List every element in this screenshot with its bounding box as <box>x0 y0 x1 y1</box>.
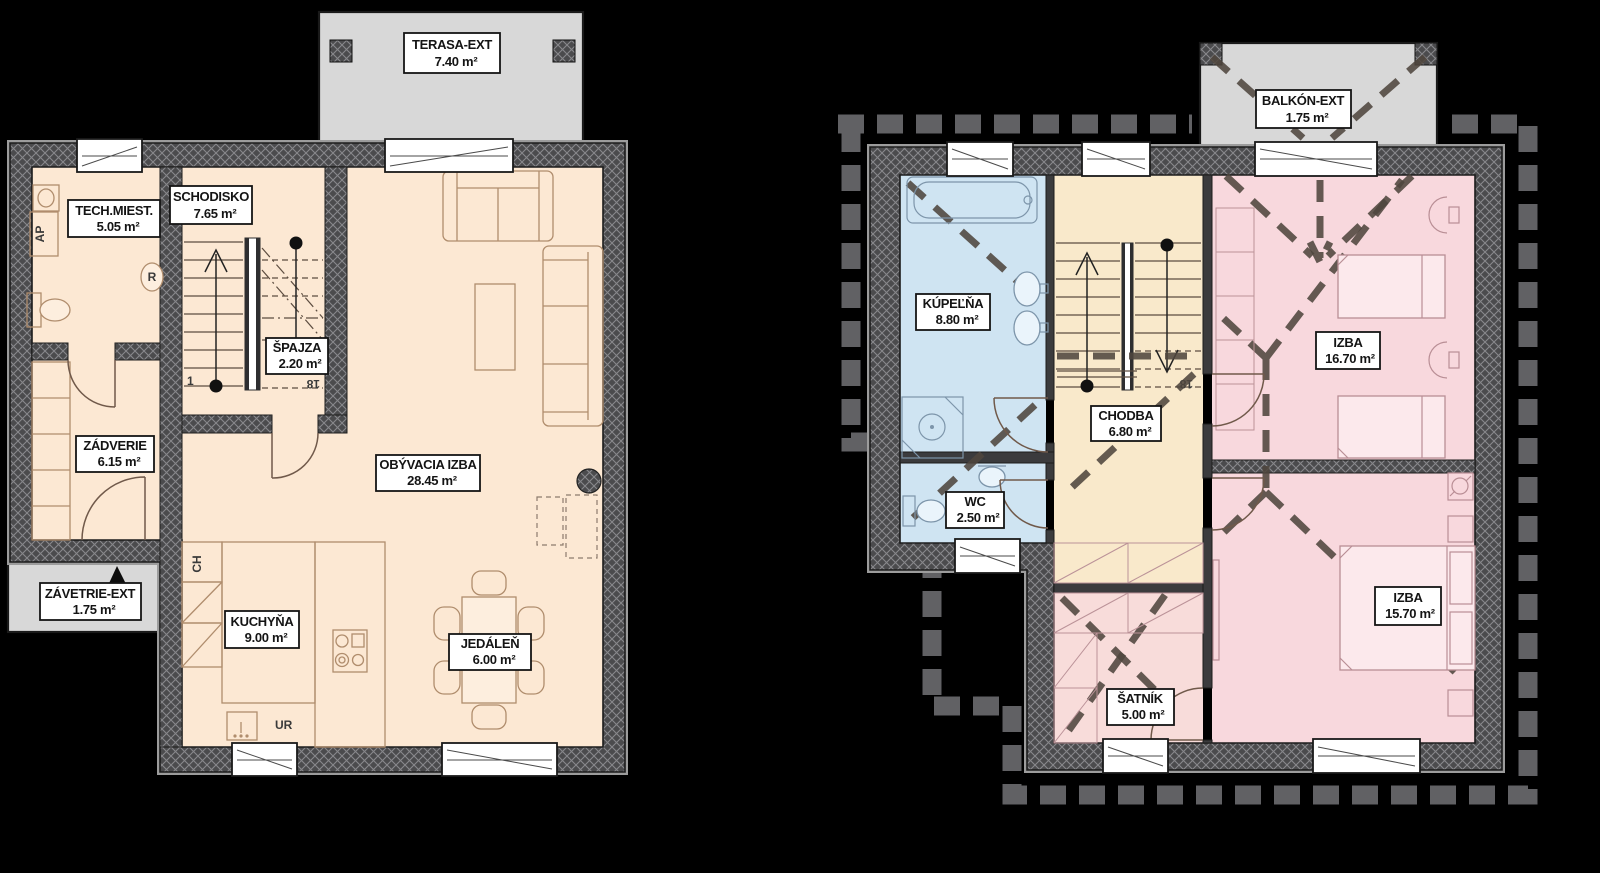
svg-text:ŠPAJZA: ŠPAJZA <box>273 340 322 355</box>
svg-text:JEDÁLEŇ: JEDÁLEŇ <box>461 636 520 651</box>
svg-text:16.70 m²: 16.70 m² <box>1325 351 1376 366</box>
room-label-bedroom1: IZBA 16.70 m² <box>1316 332 1380 369</box>
svg-text:7.65 m²: 7.65 m² <box>194 206 238 221</box>
svg-text:15.70 m²: 15.70 m² <box>1385 606 1436 621</box>
svg-text:BALKÓN-EXT: BALKÓN-EXT <box>1262 93 1345 108</box>
terrace-area <box>319 12 583 143</box>
window <box>442 743 557 776</box>
svg-text:IZBA: IZBA <box>1393 590 1423 605</box>
svg-text:ŠATNÍK: ŠATNÍK <box>1117 691 1164 706</box>
room-label-kitchen: KUCHYŇA 9.00 m² <box>225 611 299 648</box>
window <box>955 539 1020 573</box>
svg-text:R: R <box>148 270 157 284</box>
room-label-staircase: SCHODISKO 7.65 m² <box>170 186 252 224</box>
svg-text:5.05 m²: 5.05 m² <box>97 219 141 234</box>
svg-text:2.20 m²: 2.20 m² <box>279 356 323 371</box>
svg-text:ZÁVETRIE-EXT: ZÁVETRIE-EXT <box>45 586 136 601</box>
upper-floor-plan: 18 <box>838 43 1528 795</box>
svg-text:IZBA: IZBA <box>1333 335 1363 350</box>
svg-text:7.40 m²: 7.40 m² <box>435 54 479 69</box>
floorplan-canvas: 1 18 AP R CH <box>0 0 1600 873</box>
svg-text:SCHODISKO: SCHODISKO <box>173 189 249 204</box>
room-label-wc: WC 2.50 m² <box>946 492 1004 528</box>
room-label-living: OBÝVACIA IZBA 28.45 m² <box>376 455 480 491</box>
svg-text:28.45 m²: 28.45 m² <box>407 473 458 488</box>
svg-text:ZÁDVERIE: ZÁDVERIE <box>83 438 147 453</box>
stair-end-dot <box>290 237 303 250</box>
room-label-balcony: BALKÓN-EXT 1.75 m² <box>1256 90 1351 128</box>
room-label-pantry: ŠPAJZA 2.20 m² <box>266 338 328 374</box>
room-label-porch: ZÁVETRIE-EXT 1.75 m² <box>40 583 141 620</box>
svg-text:WC: WC <box>964 494 986 509</box>
window <box>1313 739 1420 773</box>
svg-text:2.50 m²: 2.50 m² <box>957 510 1001 525</box>
single-bed-symbol <box>1338 396 1445 458</box>
svg-text:CHODBA: CHODBA <box>1098 408 1154 423</box>
room-label-dining: JEDÁLEŇ 6.00 m² <box>449 634 531 670</box>
room-label-bathroom: KÚPEĽŇA 8.80 m² <box>916 294 990 330</box>
floorplan-drawing: 1 18 AP R CH <box>0 0 1600 873</box>
svg-text:TECH.MIEST.: TECH.MIEST. <box>75 203 153 218</box>
svg-text:1.75 m²: 1.75 m² <box>1286 110 1330 125</box>
window <box>1103 739 1168 773</box>
stair-start-dot <box>210 380 223 393</box>
room-label-tech: TECH.MIEST. 5.05 m² <box>68 200 160 237</box>
ground-floor-plan: 1 18 AP R CH <box>8 12 625 776</box>
svg-text:UR: UR <box>275 718 293 732</box>
svg-text:6.15 m²: 6.15 m² <box>98 454 142 469</box>
svg-text:OBÝVACIA IZBA: OBÝVACIA IZBA <box>379 457 477 472</box>
window <box>947 142 1013 176</box>
single-bed-symbol <box>1338 255 1445 318</box>
window <box>232 743 297 776</box>
svg-text:KUCHYŇA: KUCHYŇA <box>231 614 295 629</box>
svg-text:5.00 m²: 5.00 m² <box>1122 707 1166 722</box>
room-label-terrace: TERASA-EXT 7.40 m² <box>404 33 500 73</box>
window <box>1082 142 1150 176</box>
room-label-hallway: ZÁDVERIE 6.15 m² <box>76 436 154 472</box>
svg-text:9.00 m²: 9.00 m² <box>245 630 289 645</box>
terrace-post-icon <box>330 40 352 62</box>
svg-text:6.00 m²: 6.00 m² <box>473 652 517 667</box>
svg-text:TERASA-EXT: TERASA-EXT <box>412 37 492 52</box>
window <box>77 139 142 172</box>
svg-text:6.80 m²: 6.80 m² <box>1109 424 1153 439</box>
svg-text:1.75 m²: 1.75 m² <box>73 602 117 617</box>
sink-symbol <box>979 467 1005 487</box>
terrace-post-icon <box>553 40 575 62</box>
room-label-hall: CHODBA 6.80 m² <box>1091 406 1161 441</box>
room-label-closet: ŠATNÍK 5.00 m² <box>1107 689 1174 725</box>
balcony-door <box>1255 142 1377 176</box>
svg-text:KÚPEĽŇA: KÚPEĽŇA <box>923 296 985 311</box>
svg-text:8.80 m²: 8.80 m² <box>936 312 980 327</box>
svg-text:AP: AP <box>33 226 47 243</box>
stair-number-last: 18 <box>306 377 320 391</box>
room-label-bedroom2: IZBA 15.70 m² <box>1375 587 1441 625</box>
stair-number-first: 1 <box>187 374 194 388</box>
terrace-door <box>385 139 513 172</box>
svg-text:CH: CH <box>190 555 204 572</box>
